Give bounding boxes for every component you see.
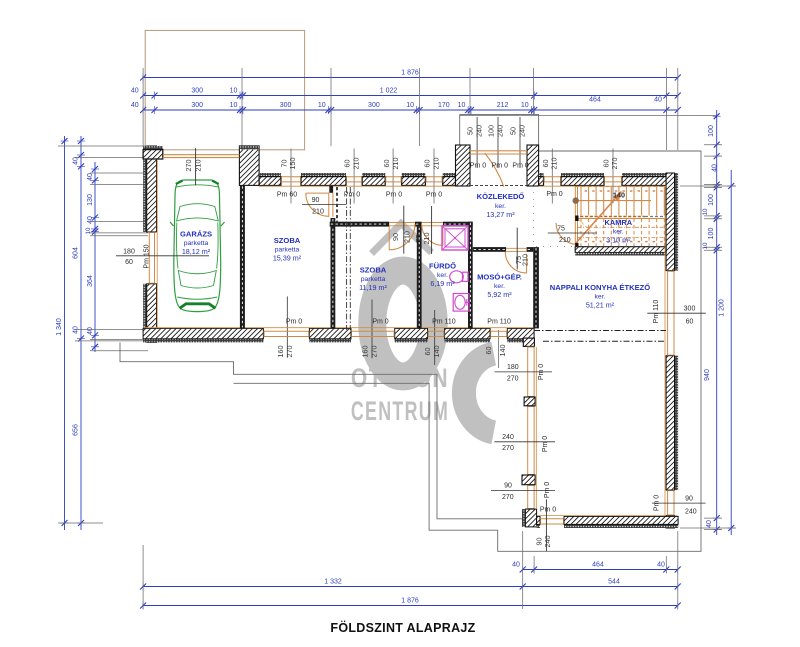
svg-text:130: 130 [87, 194, 94, 206]
svg-text:656: 656 [73, 424, 80, 436]
svg-text:FÖLDSZINT ALAPRAJZ: FÖLDSZINT ALAPRAJZ [330, 620, 475, 635]
svg-text:10: 10 [85, 227, 92, 234]
svg-text:364: 364 [87, 275, 94, 287]
svg-text:100: 100 [708, 194, 715, 206]
svg-text:240: 240 [474, 125, 483, 137]
svg-text:40: 40 [654, 97, 662, 104]
svg-text:60: 60 [343, 160, 352, 168]
svg-text:240: 240 [502, 434, 514, 441]
svg-text:CENTRUM: CENTRUM [351, 395, 449, 426]
svg-text:60: 60 [422, 160, 431, 168]
svg-text:100: 100 [487, 125, 496, 137]
svg-text:KAMRA: KAMRA [605, 218, 633, 227]
svg-text:NAPPALI KONYHA ÉTKEZŐ: NAPPALI KONYHA ÉTKEZŐ [550, 283, 651, 292]
svg-text:60: 60 [423, 348, 432, 356]
svg-text:13,27 m²: 13,27 m² [486, 210, 515, 219]
svg-text:270: 270 [502, 445, 514, 452]
svg-text:40: 40 [87, 173, 94, 181]
svg-text:604: 604 [73, 247, 80, 259]
svg-text:18,12 m²: 18,12 m² [182, 247, 211, 256]
svg-text:15,39 m²: 15,39 m² [273, 254, 302, 263]
svg-text:210: 210 [549, 158, 558, 170]
svg-text:parketta: parketta [361, 276, 386, 283]
svg-text:Pm 0: Pm 0 [542, 436, 549, 452]
svg-text:Pm 0: Pm 0 [540, 507, 556, 514]
svg-text:Pm 0: Pm 0 [426, 191, 442, 198]
svg-text:180: 180 [507, 364, 519, 371]
svg-text:40: 40 [712, 164, 719, 172]
svg-text:100: 100 [708, 125, 715, 137]
svg-text:90: 90 [312, 197, 320, 204]
svg-text:40: 40 [131, 102, 139, 109]
svg-text:Pm 0: Pm 0 [546, 191, 562, 198]
svg-text:270: 270 [285, 346, 294, 358]
svg-text:212: 212 [497, 102, 509, 109]
svg-text:40: 40 [73, 326, 80, 334]
svg-text:60: 60 [382, 160, 391, 168]
svg-text:940: 940 [704, 369, 711, 381]
svg-text:GARÁZS: GARÁZS [180, 230, 212, 239]
svg-text:240: 240 [543, 536, 552, 548]
svg-text:Pm 0: Pm 0 [344, 191, 360, 198]
svg-text:10: 10 [230, 88, 238, 95]
svg-text:210: 210 [352, 158, 361, 170]
svg-text:Pm 0: Pm 0 [286, 318, 302, 325]
svg-text:40: 40 [706, 520, 713, 528]
svg-text:140: 140 [498, 345, 507, 357]
svg-text:90: 90 [685, 496, 693, 503]
svg-text:464: 464 [589, 97, 601, 104]
svg-text:90: 90 [391, 233, 400, 241]
svg-text:OTTHON: OTTHON [351, 364, 449, 394]
svg-text:60: 60 [125, 259, 133, 266]
svg-text:270: 270 [502, 494, 514, 501]
svg-text:1 876: 1 876 [401, 70, 419, 77]
svg-text:parketta: parketta [184, 240, 209, 247]
svg-text:300: 300 [280, 102, 292, 109]
svg-text:10: 10 [406, 102, 414, 109]
svg-text:Pm 150: Pm 150 [143, 244, 150, 268]
svg-text:ker.: ker. [613, 229, 624, 236]
svg-text:464: 464 [592, 562, 604, 569]
svg-text:240: 240 [496, 125, 505, 137]
svg-text:40: 40 [87, 216, 94, 224]
svg-text:50: 50 [466, 127, 475, 135]
svg-text:170: 170 [438, 102, 450, 109]
svg-text:1 876: 1 876 [401, 598, 419, 605]
svg-text:300: 300 [191, 102, 203, 109]
svg-text:40: 40 [657, 562, 665, 569]
svg-text:160: 160 [361, 346, 370, 358]
svg-text:544: 544 [608, 579, 620, 586]
svg-text:SZOBA: SZOBA [274, 236, 301, 245]
svg-text:270: 270 [184, 160, 193, 172]
svg-text:Pm 110: Pm 110 [432, 318, 456, 325]
svg-text:10: 10 [230, 102, 238, 109]
svg-text:90: 90 [504, 483, 512, 490]
svg-text:150: 150 [288, 158, 297, 170]
svg-text:Pm 110: Pm 110 [487, 318, 511, 325]
svg-text:Pm 0: Pm 0 [372, 318, 388, 325]
svg-text:1 022: 1 022 [380, 88, 398, 95]
svg-text:Pm 0: Pm 0 [386, 191, 402, 198]
svg-text:1 200: 1 200 [719, 299, 726, 317]
svg-text:300: 300 [368, 102, 380, 109]
svg-text:270: 270 [610, 158, 619, 170]
svg-text:FÜRDŐ: FÜRDŐ [429, 261, 456, 270]
svg-text:Pm 0: Pm 0 [470, 163, 486, 170]
svg-text:Pm 0: Pm 0 [544, 482, 551, 498]
svg-text:Pm 110: Pm 110 [653, 300, 660, 324]
svg-text:240: 240 [685, 508, 697, 515]
svg-text:60: 60 [484, 347, 493, 355]
svg-text:140: 140 [432, 346, 441, 358]
svg-text:210: 210 [521, 254, 530, 266]
svg-text:3,10 m²: 3,10 m² [606, 236, 631, 245]
svg-text:51,21 m²: 51,21 m² [586, 301, 615, 310]
svg-text:40: 40 [131, 88, 139, 95]
svg-text:ker.: ker. [437, 272, 448, 279]
svg-text:210: 210 [422, 233, 431, 245]
svg-text:5,92 m²: 5,92 m² [487, 290, 512, 299]
svg-text:300: 300 [191, 88, 203, 95]
svg-text:210: 210 [391, 158, 400, 170]
svg-text:SZOBA: SZOBA [360, 265, 387, 274]
svg-text:ker.: ker. [495, 203, 506, 210]
svg-text:10: 10 [702, 208, 709, 215]
svg-text:60: 60 [686, 319, 694, 326]
svg-text:40: 40 [512, 562, 520, 569]
svg-text:MOSÓ+GÉP.: MOSÓ+GÉP. [477, 272, 522, 281]
svg-text:300: 300 [684, 305, 696, 312]
svg-text:100: 100 [708, 228, 715, 240]
svg-text:75: 75 [557, 225, 565, 232]
svg-text:KÖZLEKEDŐ: KÖZLEKEDŐ [477, 192, 525, 201]
svg-text:6,19 m²: 6,19 m² [430, 279, 455, 288]
svg-text:10: 10 [521, 102, 529, 109]
svg-text:ker.: ker. [595, 294, 606, 301]
svg-text:10: 10 [702, 242, 709, 249]
svg-text:40: 40 [73, 157, 80, 165]
svg-text:parketta: parketta [275, 247, 300, 254]
svg-text:11,19 m²: 11,19 m² [359, 283, 387, 292]
svg-text:50: 50 [509, 127, 518, 135]
svg-text:210: 210 [312, 209, 324, 216]
svg-text:270: 270 [507, 375, 519, 382]
svg-text:160: 160 [276, 346, 285, 358]
svg-text:210: 210 [559, 237, 571, 244]
svg-text:10: 10 [458, 102, 466, 109]
svg-text:270: 270 [370, 346, 379, 358]
svg-text:240: 240 [517, 125, 526, 137]
svg-text:210: 210 [431, 158, 440, 170]
svg-text:Pm 0: Pm 0 [512, 163, 528, 170]
svg-text:210: 210 [194, 160, 203, 172]
svg-text:ker.: ker. [494, 283, 505, 290]
svg-text:10: 10 [318, 102, 326, 109]
svg-text:1 340: 1 340 [56, 318, 63, 336]
svg-text:Pm 60: Pm 60 [277, 191, 297, 198]
svg-text:180: 180 [123, 248, 135, 255]
svg-text:140: 140 [613, 191, 625, 200]
svg-text:1 332: 1 332 [324, 579, 342, 586]
svg-text:Pm 0: Pm 0 [492, 163, 508, 170]
svg-text:40: 40 [87, 327, 94, 335]
